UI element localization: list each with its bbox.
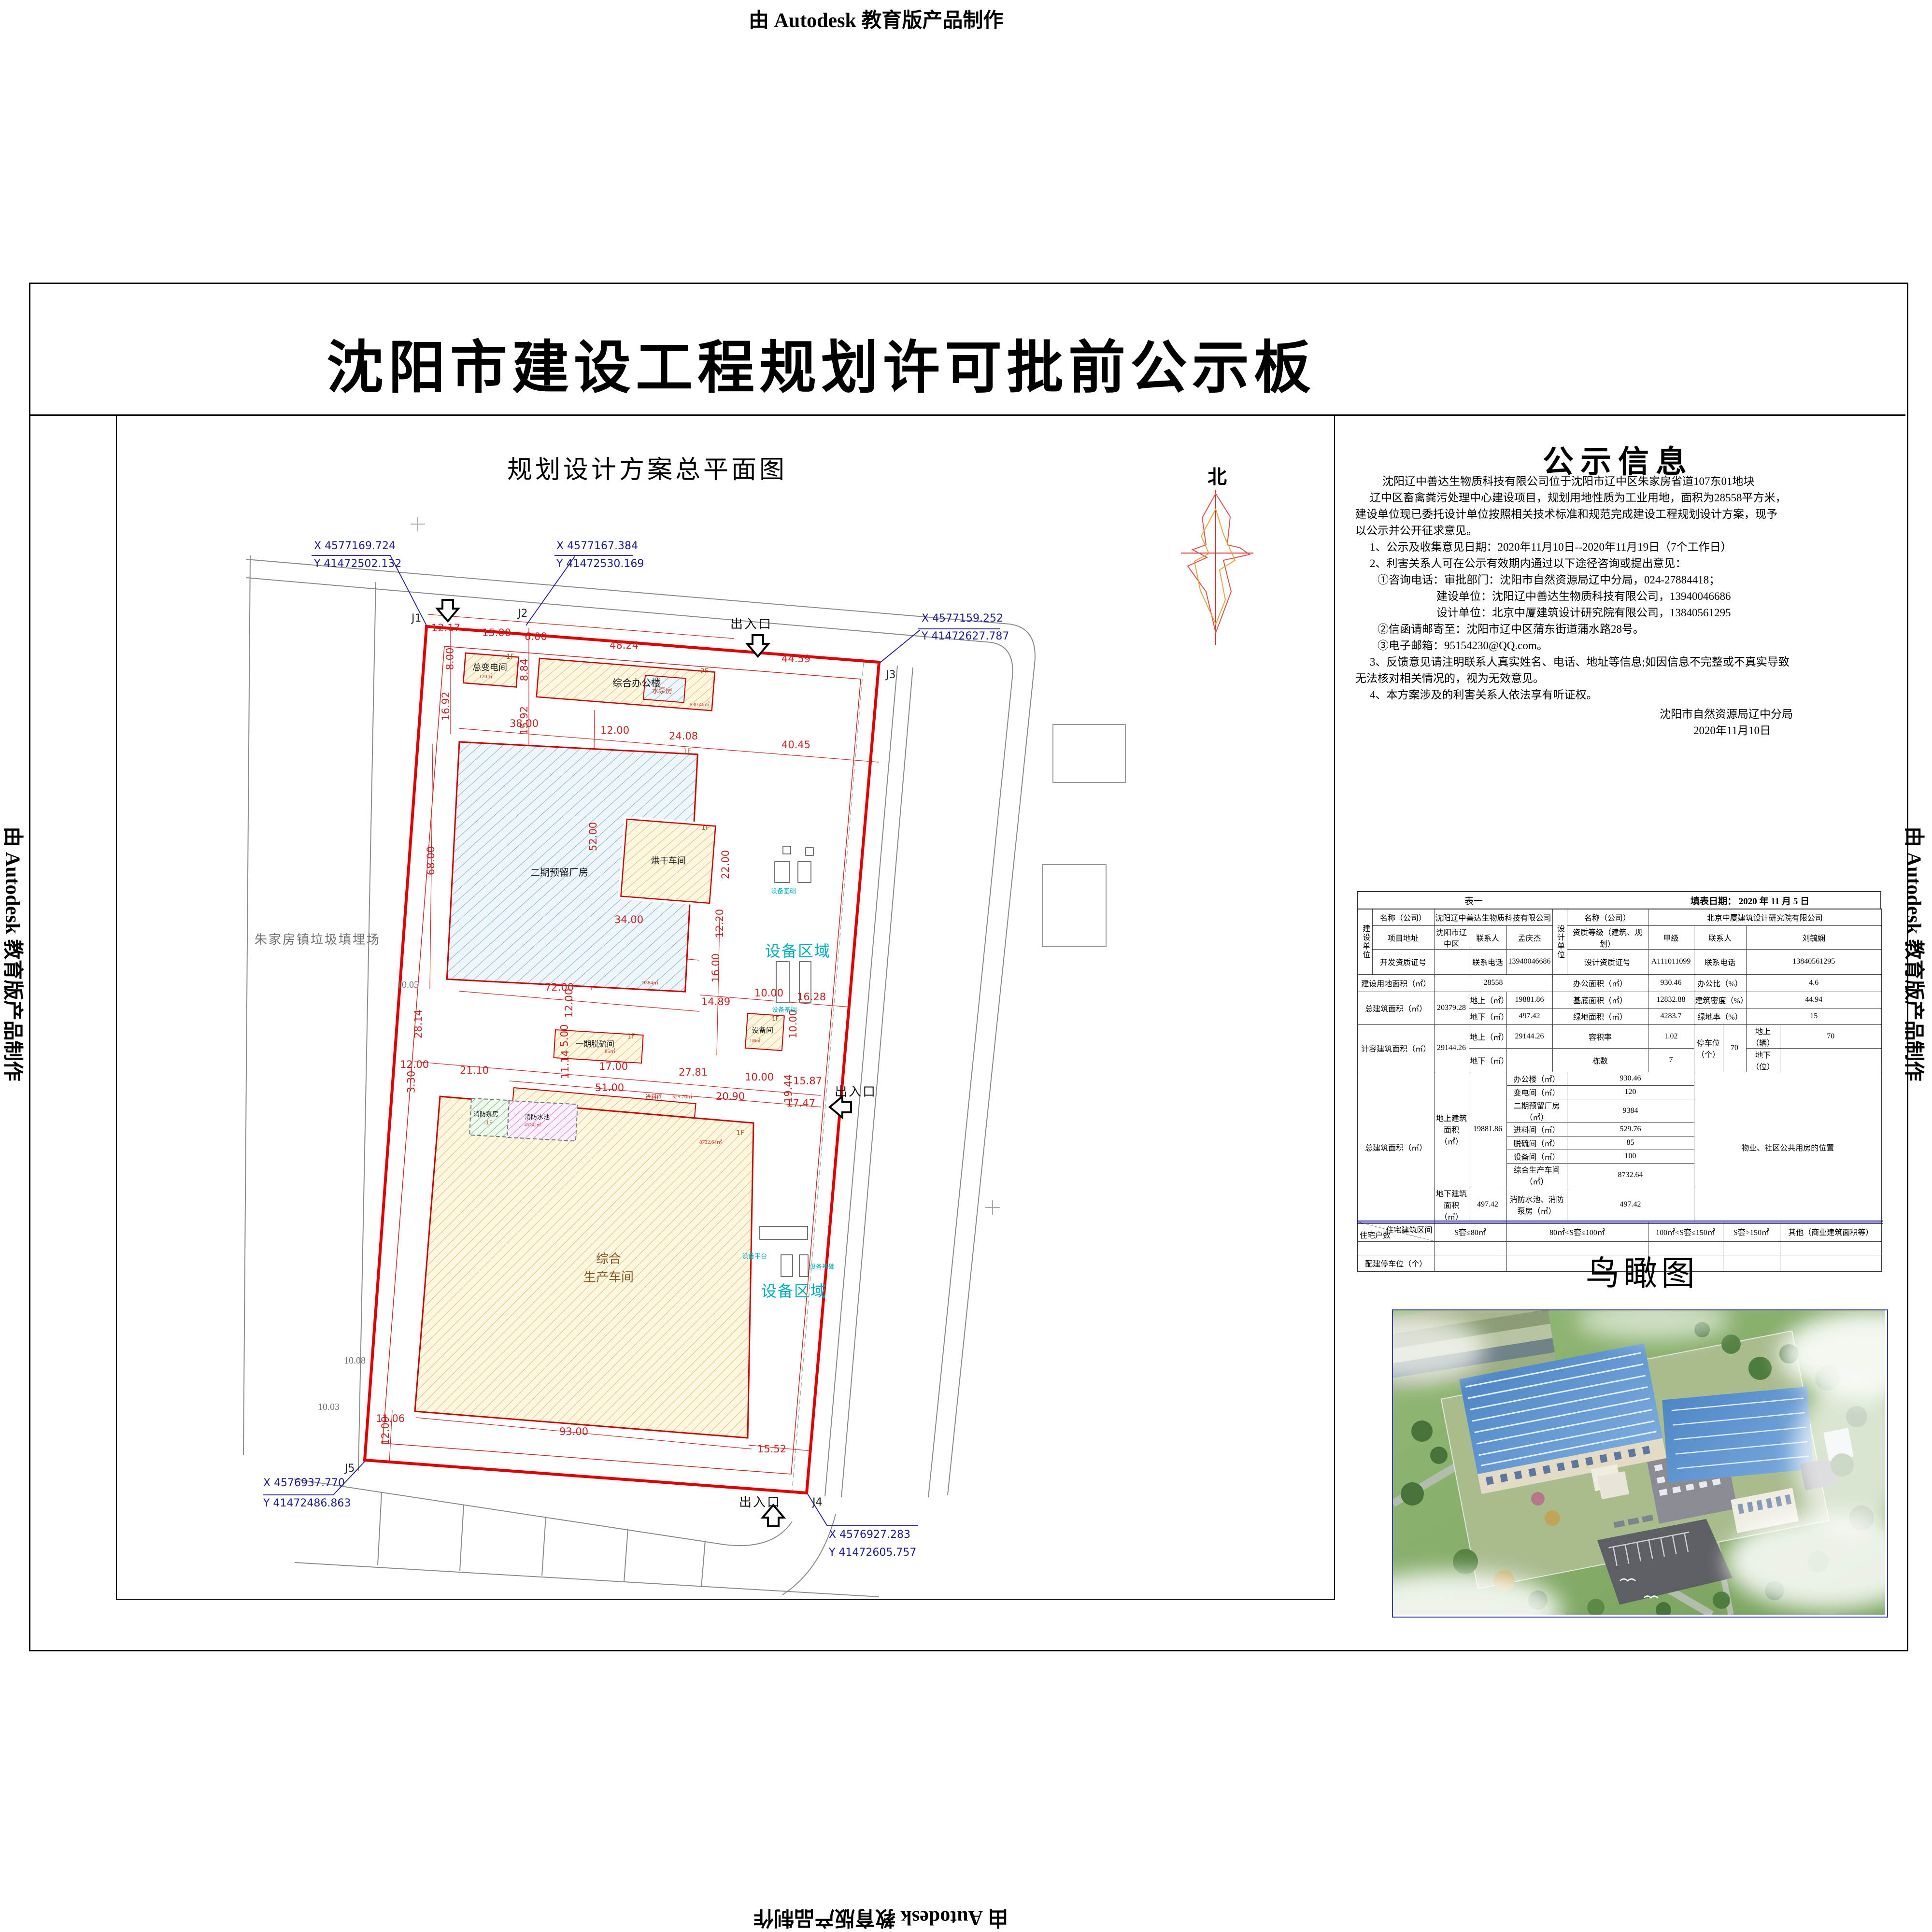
cell: 地上（㎡） — [1469, 1024, 1506, 1048]
dim-label: 17.00 — [599, 1061, 628, 1072]
table-fill-date: 填表日期： 2020 年 11 月 5 日 — [1690, 894, 1809, 907]
cell — [1434, 1255, 1506, 1271]
cell: 孟庆杰 — [1506, 925, 1552, 949]
cell: 19881.86 — [1469, 1072, 1506, 1187]
cell: 120 — [1567, 1085, 1694, 1099]
cell: 资质等级（建筑、规划） — [1567, 925, 1648, 949]
cell: 地上（㎡） — [1469, 992, 1506, 1008]
notice-line: 建设单位：沈阳辽中善达生物质科技有限公司，13940046686 — [1355, 588, 1882, 605]
dim-label: 24.08 — [669, 730, 698, 742]
cell: 地下（㎡） — [1469, 1008, 1506, 1024]
area-label: 497.42㎡ — [525, 1122, 541, 1128]
notice-line: ①咨询电话：审批部门：沈阳市自然资源局辽中分局，024-27884418； — [1355, 572, 1882, 588]
corner-label: J2 — [518, 608, 528, 620]
cell: 甲级 — [1648, 925, 1694, 949]
cell — [1780, 1048, 1882, 1072]
cell: 住宅建筑区间 — [1386, 1223, 1432, 1235]
dim-label: 34.00 — [614, 914, 643, 925]
building-label: 设备间 — [752, 1025, 773, 1035]
cell: 总建筑面积（㎡） — [1358, 1072, 1434, 1222]
cell: 497.42 — [1567, 1187, 1694, 1222]
dim-label: 10.00 — [754, 987, 783, 999]
cell: 刘毓娴 — [1746, 925, 1882, 949]
cell: 497.42 — [1506, 1008, 1552, 1024]
project-data-table: 表一 填表日期： 2020 年 11 月 5 日 建设单位 名称（公司） 沈阳辽… — [1357, 891, 1881, 1272]
cell: 29144.26 — [1506, 1024, 1552, 1048]
coordinate-x: X 4576937.770 — [263, 1477, 345, 1489]
cell: 70 — [1780, 1024, 1882, 1048]
cell: 8732.64 — [1567, 1163, 1694, 1187]
area-label: 85㎡ — [605, 1047, 615, 1055]
dim-label: 15.87 — [793, 1075, 822, 1087]
cell: 沈阳市辽中区 — [1434, 925, 1469, 949]
cell: 联系人 — [1469, 925, 1506, 949]
area-label: 9384㎡ — [642, 979, 658, 986]
cell: 930.46 — [1567, 1072, 1694, 1085]
builder-group: 建设单位 — [1358, 909, 1372, 974]
cell: 绿地面积（㎡） — [1552, 1008, 1648, 1024]
cell — [1506, 1048, 1552, 1072]
cell: 办公比（%） — [1694, 974, 1746, 992]
corner-label: J4 — [812, 1496, 823, 1508]
cell: 13840561295 — [1746, 949, 1882, 974]
dim-label: 17.47 — [786, 1097, 815, 1109]
building-label: 消防水池 — [525, 1112, 550, 1121]
dim-label: 8.00 — [444, 648, 455, 670]
cell — [1780, 1241, 1882, 1255]
cell: 85 — [1567, 1136, 1694, 1150]
floors-label: -1F — [484, 1120, 492, 1126]
notice-line: 1、公示及收集意见日期：2020年11月10日--2020年11月19日（7个工… — [1355, 539, 1882, 555]
cell: 开发资质证号 — [1372, 949, 1434, 974]
cell: 70 — [1723, 1024, 1746, 1072]
dim-label: 12.00 — [400, 1059, 429, 1070]
notice-line: 3、反馈意见请注明联系人真实姓名、电话、地址等信息;如因信息不完整或不真实导致 — [1355, 654, 1882, 670]
cell: 二期预留厂房（㎡） — [1506, 1099, 1567, 1122]
equipment-foundation-label: 设备基础 — [771, 886, 796, 895]
notice-signature: 沈阳市自然资源局辽中分局 — [1355, 706, 1882, 723]
building-label: 二期预留厂房 — [530, 865, 588, 879]
cell: 住宅户数 — [1360, 1229, 1391, 1240]
entrance-label-top: 出入口 — [730, 614, 772, 632]
dim-label: 38.00 — [510, 718, 539, 729]
cell: 物业、社区公共用房的位置 — [1694, 1072, 1882, 1222]
area-label: 529.76㎡ — [672, 1093, 692, 1100]
cell: 进料间（㎡） — [1506, 1122, 1567, 1136]
corner-label: J5 — [345, 1463, 355, 1475]
cell: 计容建筑面积（㎡） — [1358, 1024, 1434, 1072]
landfill-label: 朱家房镇垃圾填埋场 — [255, 930, 381, 948]
notice-body: 沈阳辽中善达生物质科技有限公司位于沈阳市辽中区朱家房省道107东01地块 辽中区… — [1355, 473, 1882, 739]
cell: 4.6 — [1746, 974, 1882, 992]
cell: 15 — [1746, 1008, 1882, 1024]
equipment-platform-label: 设备平台 — [742, 1251, 767, 1260]
cell: 建筑密度（%） — [1694, 992, 1746, 1008]
cell: S套>150㎡ — [1723, 1222, 1780, 1241]
cell: 其他（商业建筑面积等） — [1780, 1222, 1882, 1241]
aerial-view-image — [1392, 1309, 1888, 1618]
cell: 联系电话 — [1469, 949, 1506, 974]
cell — [1358, 1241, 1434, 1255]
cell: 名称（公司） — [1372, 909, 1434, 925]
dim-label: 12.20 — [714, 909, 725, 938]
dim-label: 15.00 — [482, 627, 511, 639]
dim-label: 15.52 — [757, 1443, 786, 1455]
cell: 930.46 — [1648, 974, 1694, 992]
floors-label: 1F — [627, 1033, 635, 1040]
dim-label: 22.00 — [720, 850, 731, 879]
building-label: 水泵房 — [652, 686, 672, 696]
notice-line: ③电子邮箱：95154230@QQ.com。 — [1355, 638, 1882, 654]
dim-label: 6.00 — [525, 631, 547, 642]
watermark-left: 由 Autodesk 教育版产品制作 — [0, 826, 29, 1081]
coordinate-y: Y 41472530.169 — [556, 558, 644, 570]
page-title: 沈阳市建设工程规划许可批前公示板 — [299, 321, 1343, 404]
table-bottom-rule — [1357, 1221, 1883, 1224]
area-label: 930.46㎡ — [690, 700, 710, 708]
watermark-top: 由 Autodesk 教育版产品制作 — [749, 4, 1003, 33]
coordinate-x: X 4576927.283 — [829, 1529, 910, 1541]
cell: 基底面积（㎡） — [1552, 992, 1648, 1008]
area-label: 8732.64㎡ — [699, 1138, 722, 1146]
elevation-label: 10.05 — [397, 980, 419, 991]
cell: 绿地率（%） — [1694, 1008, 1746, 1024]
coordinate-y: Y 41472486.863 — [263, 1497, 351, 1509]
cell: 建设用地面积（㎡） — [1358, 974, 1434, 992]
dim-label: 44.59 — [781, 653, 810, 665]
cell: 地上建筑面积（㎡） — [1434, 1072, 1469, 1187]
cell: S套≤80㎡ — [1434, 1222, 1506, 1241]
cell: 消防水池、消防泵房（㎡） — [1506, 1187, 1567, 1222]
floors-label: 1F — [736, 1129, 744, 1137]
building-label: 综合 生产车间 — [575, 1250, 642, 1287]
cell: 名称（公司） — [1567, 909, 1648, 925]
cell: 20379.28 — [1434, 992, 1469, 1024]
dim-label: 48.24 — [610, 639, 639, 651]
cell — [1434, 949, 1469, 974]
cell: 容积率 — [1552, 1024, 1648, 1048]
cell: 1.02 — [1648, 1024, 1694, 1048]
coordinate-x: X 4577169.724 — [314, 540, 396, 552]
notice-line: 沈阳辽中善达生物质科技有限公司位于沈阳市辽中区朱家房省道107东01地块 — [1355, 473, 1882, 490]
cell: 4283.7 — [1648, 1008, 1694, 1024]
aerial-view-title: 鸟瞰图 — [1536, 1246, 1748, 1295]
floors-label: 1F — [683, 748, 691, 755]
dim-label: 51.00 — [595, 1082, 624, 1094]
cell: 12832.88 — [1648, 992, 1694, 1008]
area-label: 100㎡ — [750, 1037, 761, 1044]
cell: 29144.26 — [1434, 1024, 1469, 1072]
dim-label: 52.00 — [587, 822, 599, 851]
elevation-label: 10.08 — [344, 1355, 366, 1366]
cell — [1780, 1255, 1882, 1271]
cell: 项目地址 — [1372, 925, 1434, 949]
notice-signature-date: 2020年11月10日 — [1355, 723, 1882, 739]
dim-label: 12.00 — [563, 989, 575, 1018]
cell: 529.76 — [1567, 1122, 1694, 1136]
equipment-foundation-label: 设备基础 — [810, 1262, 835, 1271]
cell: 地下（㎡） — [1469, 1048, 1506, 1072]
cell: 19881.86 — [1506, 992, 1552, 1008]
dim-label: 12.17 — [431, 622, 460, 634]
cell: 地下建筑面积（㎡） — [1434, 1187, 1469, 1222]
cell: 综合生产车间（㎡） — [1506, 1163, 1567, 1187]
cell: 设计资质证号 — [1567, 949, 1648, 974]
cell: 28558 — [1434, 974, 1552, 992]
notice-line: 建设单位现已委托设计单位按照相关技术标准和规范完成建设工程规划设计方案，现予 — [1355, 506, 1882, 523]
notice-line: 4、本方案涉及的利害关系人依法享有听证权。 — [1355, 687, 1882, 703]
coordinate-y: Y 41472627.787 — [922, 630, 1009, 642]
dim-label: 20.90 — [716, 1091, 745, 1102]
dim-label: 27.81 — [679, 1066, 708, 1078]
cell: 100 — [1567, 1150, 1694, 1163]
cell: 100㎡<S套≤150㎡ — [1648, 1222, 1723, 1241]
dim-label: 16.00 — [710, 953, 722, 982]
dim-label: 14.89 — [701, 996, 730, 1008]
dim-label: 10.00 — [745, 1071, 774, 1083]
dim-label: 93.00 — [559, 1426, 588, 1437]
cell — [1434, 1241, 1506, 1255]
dim-label: 5.00 — [558, 1024, 570, 1047]
dim-label: 11.14 — [559, 1050, 571, 1079]
cell: 办公楼（㎡） — [1506, 1072, 1567, 1085]
cell: 9384 — [1567, 1099, 1694, 1122]
dim-label: 8.84 — [518, 659, 530, 682]
cell: 联系人 — [1694, 925, 1746, 949]
notice-line: ②信函请邮寄至：沈阳市辽中区蒲东街道蒲水路28号。 — [1355, 621, 1882, 638]
cell: 13940046686 — [1506, 949, 1552, 974]
cell: 联系电话 — [1694, 949, 1746, 974]
equipment-zone-label: 设备区域 — [765, 939, 831, 961]
coordinate-y: Y 41472502.132 — [314, 558, 401, 570]
cell: 44.94 — [1746, 992, 1882, 1008]
notice-line: 设计单位：北京中厦建筑设计研究院有限公司，13840561295 — [1355, 605, 1882, 621]
equipment-pads — [760, 846, 813, 1277]
dim-label: 21.10 — [460, 1065, 489, 1076]
floors-label: 2F — [700, 668, 709, 675]
cell: 停车位（个） — [1694, 1024, 1723, 1072]
cell: 配建停车位（个） — [1358, 1255, 1434, 1271]
entrance-label-right: 出入口 — [835, 1082, 877, 1100]
equipment-zone-label: 设备区域 — [761, 1279, 827, 1301]
table-caption-row: 表一 填表日期： 2020 年 11 月 5 日 — [1357, 891, 1881, 909]
floors-label: 1F — [701, 824, 710, 832]
area-label: 120㎡ — [479, 672, 493, 680]
cell: A111011099 — [1648, 949, 1694, 974]
dim-label: 68.00 — [425, 846, 437, 875]
dim-label: 40.45 — [781, 739, 810, 751]
building-label: 进料间 — [645, 1093, 663, 1101]
cell: 栋数 — [1552, 1048, 1648, 1072]
table-caption: 表一 — [1464, 894, 1483, 907]
watermark-bottom: 由 Autodesk 教育版产品制作 — [753, 1905, 1008, 1932]
cell: 总建筑面积（㎡） — [1358, 992, 1434, 1024]
dim-label: 28.14 — [412, 1009, 424, 1038]
cell: 地下（位） — [1746, 1048, 1780, 1072]
dim-label: 12.00 — [600, 724, 629, 736]
building-label: 消防泵房 — [473, 1109, 498, 1118]
cell: 设备间（㎡） — [1506, 1150, 1567, 1163]
cell: 办公面积（㎡） — [1552, 974, 1648, 992]
housing-diagonal-cell: 住宅建筑区间 住宅户数 — [1358, 1222, 1434, 1241]
building-label: 总变电间 — [472, 661, 507, 673]
corner-label: J1 — [412, 612, 422, 625]
notice-line: 2、利害关系人可在公示有效期内通过以下途径咨询或提出意见： — [1355, 555, 1882, 572]
notice-line: 以公示并公开征求意见。 — [1355, 523, 1882, 539]
coordinate-y: Y 41472605.757 — [829, 1547, 916, 1559]
notice-board-sheet: 由 Autodesk 教育版产品制作 由 Autodesk 教育版产品制作 由 … — [0, 0, 1932, 1932]
cell: 497.42 — [1469, 1187, 1506, 1222]
cell: 变电间（㎡） — [1506, 1085, 1567, 1099]
cell: 地上（辆） — [1746, 1024, 1780, 1048]
entrance-label-bottom: 出入口 — [739, 1492, 781, 1510]
equipment-foundation-label: 设备基础 — [772, 1005, 797, 1014]
dim-label: 16.92 — [440, 692, 452, 721]
notice-line: 无法核对相关情况的，视为无效意见。 — [1355, 670, 1882, 687]
notice-line: 辽中区畜禽粪污处理中心建设项目，规划用地性质为工业用地，面积为28558平方米， — [1355, 490, 1882, 506]
cell: 80㎡<S套≤100㎡ — [1506, 1222, 1648, 1241]
coordinate-x: X 4577167.384 — [556, 540, 638, 552]
dim-label: 3.30 — [405, 1071, 417, 1094]
builder-name: 沈阳辽中善达生物质科技有限公司 — [1434, 909, 1552, 925]
elevation-label: 10.03 — [318, 1402, 340, 1413]
coordinate-x: X 4577159.252 — [922, 612, 1003, 625]
designer-name: 北京中厦建筑设计研究院有限公司 — [1648, 909, 1882, 925]
corner-label: J3 — [886, 669, 896, 681]
designer-group: 设计单位 — [1552, 909, 1567, 974]
floors-label: 1F — [772, 1015, 779, 1022]
building-label: 烘干车间 — [651, 854, 686, 867]
cell: 脱硫间（㎡） — [1506, 1136, 1567, 1150]
dim-label: 16.28 — [797, 991, 826, 1003]
cell: 7 — [1648, 1048, 1694, 1072]
floors-label: 1F — [506, 653, 514, 661]
dim-label: 12.09 — [380, 1416, 391, 1445]
